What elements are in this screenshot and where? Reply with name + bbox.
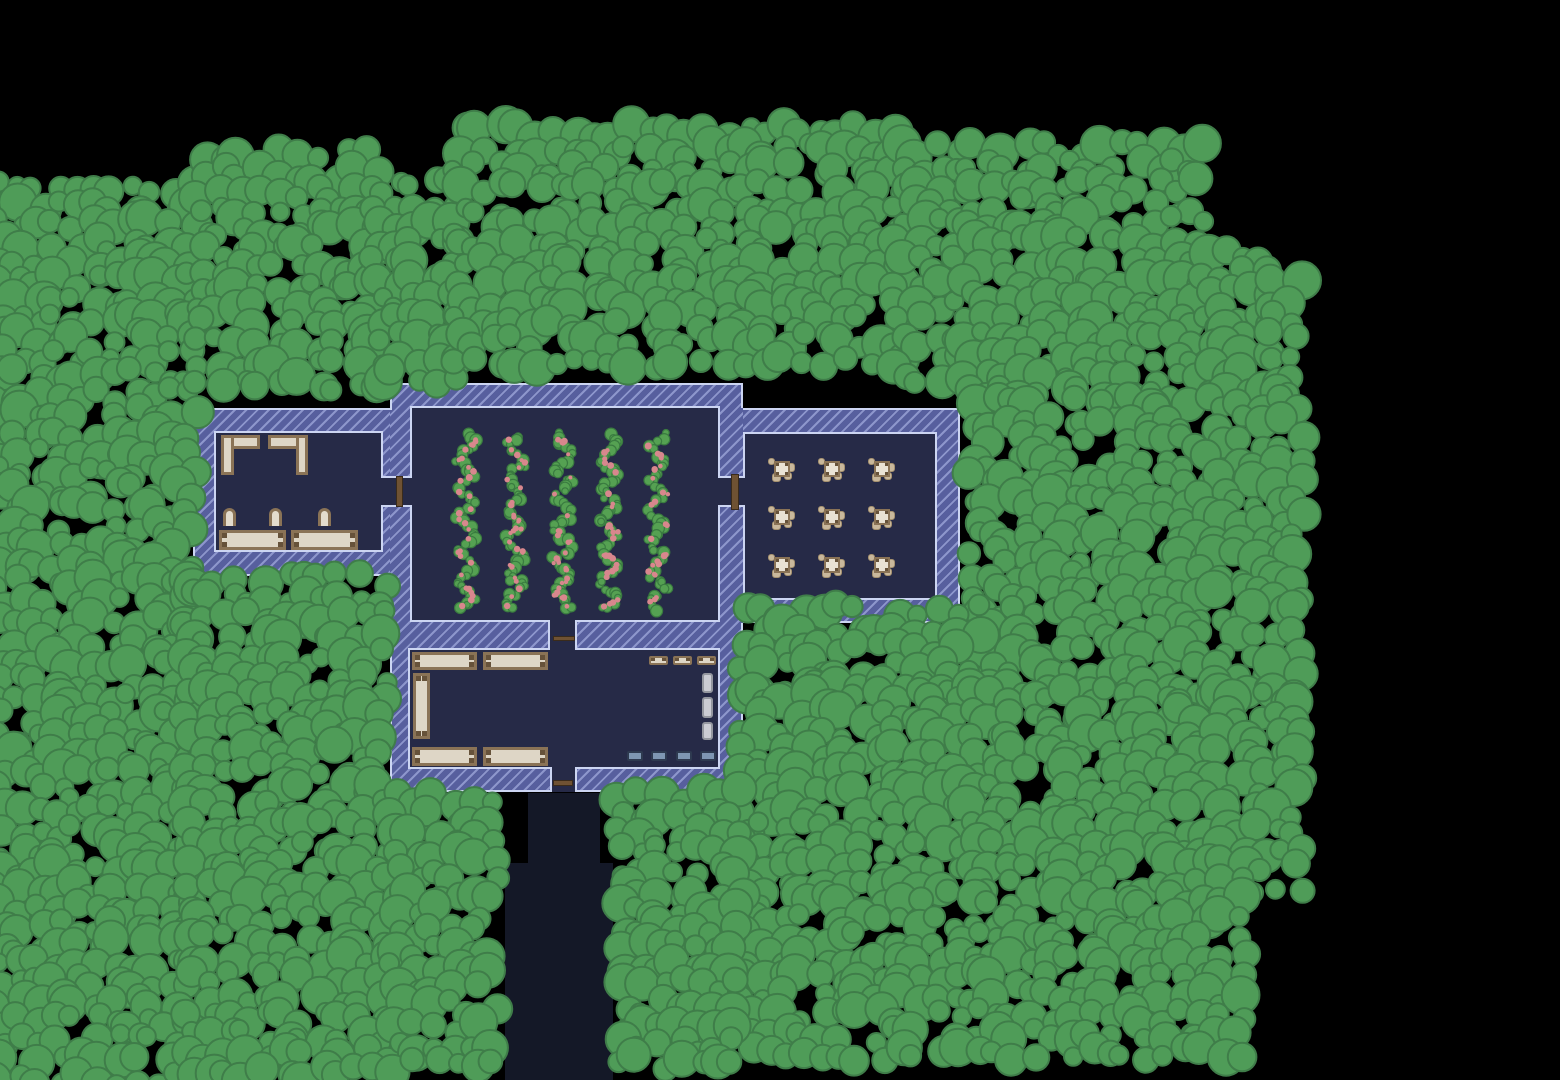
wall-outline (390, 574, 392, 792)
west-room-chair[interactable] (269, 508, 282, 526)
wall-outline (958, 408, 960, 623)
south-room-table[interactable] (483, 747, 548, 766)
south-room-table[interactable] (413, 673, 430, 739)
dining-table-set[interactable] (819, 504, 845, 530)
dining-table-set[interactable] (769, 504, 795, 530)
wall-outline (390, 383, 743, 385)
south-room-chest[interactable] (627, 751, 643, 761)
south-room-locker[interactable] (702, 722, 713, 740)
west-door[interactable] (396, 476, 403, 507)
game-map (0, 0, 1560, 1080)
wall-outline (741, 623, 743, 792)
dining-table-top (874, 509, 890, 525)
south-room-small-table[interactable] (649, 656, 668, 665)
dining-table-top (774, 509, 790, 525)
wall-outline (743, 621, 960, 623)
dining-table-set[interactable] (869, 504, 895, 530)
dining-table-set[interactable] (769, 456, 795, 482)
west-room-table[interactable] (219, 530, 286, 550)
wall-outline (741, 383, 743, 408)
dining-table-set[interactable] (869, 456, 895, 482)
dining-table-top (824, 557, 840, 573)
wall-outline (390, 790, 550, 792)
south-room-table[interactable] (412, 652, 477, 670)
wall-outline (743, 408, 960, 410)
south-room-small-table[interactable] (673, 656, 692, 665)
dining-table-top (774, 461, 790, 477)
west-room-counter[interactable] (296, 435, 308, 475)
south-doorway[interactable] (548, 620, 577, 650)
dining-table-set[interactable] (819, 456, 845, 482)
south-room-locker[interactable] (702, 697, 713, 718)
south-room-table[interactable] (412, 747, 477, 766)
dining-table-top (874, 557, 890, 573)
wall-outline (193, 408, 195, 576)
wall-outline (390, 383, 392, 410)
west-room-chair[interactable] (318, 508, 331, 526)
dining-table-set[interactable] (869, 552, 895, 578)
exit-door[interactable] (553, 780, 573, 786)
wall-outline (193, 408, 390, 410)
south-room-chest[interactable] (651, 751, 667, 761)
dining-table-top (874, 461, 890, 477)
south-room-locker[interactable] (702, 673, 713, 693)
south-room-small-table[interactable] (697, 656, 716, 665)
dining-table-set[interactable] (769, 552, 795, 578)
farm-room-floor[interactable] (410, 406, 720, 622)
south-room-chest[interactable] (676, 751, 692, 761)
settlement-building (0, 0, 1560, 1080)
south-room-table[interactable] (483, 652, 548, 670)
wall-outline (193, 574, 390, 576)
dining-table-top (774, 557, 790, 573)
west-room-table[interactable] (291, 530, 358, 550)
west-room-chair[interactable] (223, 508, 236, 526)
wall-outline (577, 790, 743, 792)
west-room-counter[interactable] (221, 435, 234, 475)
south-door[interactable] (553, 636, 575, 641)
dining-table-set[interactable] (819, 552, 845, 578)
south-room-chest[interactable] (700, 751, 716, 761)
east-door[interactable] (731, 474, 739, 510)
dining-table-top (824, 509, 840, 525)
dining-table-top (824, 461, 840, 477)
